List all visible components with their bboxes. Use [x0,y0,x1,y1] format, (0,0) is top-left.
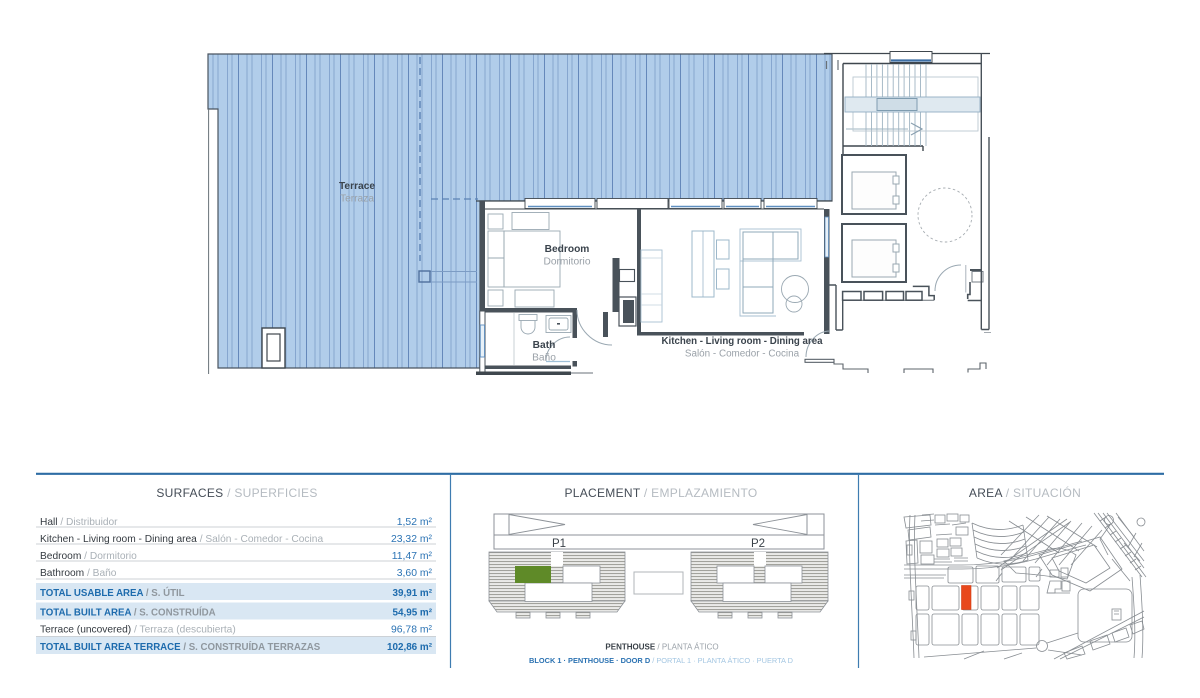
svg-text:Terraza: Terraza [340,194,374,205]
svg-text:BLOCK 1 · PENTHOUSE · DOOR D /: BLOCK 1 · PENTHOUSE · DOOR D / PORTAL 1 … [529,656,793,665]
svg-text:SURFACES / SUPERFICIES: SURFACES / SUPERFICIES [156,486,317,500]
svg-text:Hall / Distribuidor: Hall / Distribuidor [40,517,118,528]
svg-text:39,91 m²: 39,91 m² [392,588,432,599]
svg-text:TOTAL BUILT AREA TERRACE / S.: TOTAL BUILT AREA TERRACE / S. CONSTRUÍDA… [40,642,321,653]
svg-text:1,52 m²: 1,52 m² [397,517,433,528]
svg-text:Terrace: Terrace [339,181,375,192]
svg-text:P2: P2 [751,538,765,550]
svg-text:Kitchen - Living room - Dining: Kitchen - Living room - Dining area [662,336,824,347]
svg-text:PLACEMENT / EMPLAZAMIENTO: PLACEMENT / EMPLAZAMIENTO [564,486,757,500]
svg-text:96,78 m²: 96,78 m² [391,625,433,636]
svg-text:Bedroom: Bedroom [545,244,590,255]
svg-text:Bathroom / Baño: Bathroom / Baño [40,568,117,579]
svg-text:TOTAL BUILT AREA / S. CONSTRUÍ: TOTAL BUILT AREA / S. CONSTRUÍDA [40,608,216,619]
svg-text:Terrace (uncovered) / Terraza: Terrace (uncovered) / Terraza (descubier… [40,625,236,636]
svg-text:23,32 m²: 23,32 m² [391,534,433,545]
svg-text:Baño: Baño [532,353,556,364]
svg-text:3,60 m²: 3,60 m² [397,568,433,579]
svg-text:P1: P1 [552,538,566,550]
svg-text:102,86 m²: 102,86 m² [387,642,433,653]
svg-text:PENTHOUSE / PLANTA ÁTICO: PENTHOUSE / PLANTA ÁTICO [605,643,718,652]
svg-text:11,47 m²: 11,47 m² [392,551,433,562]
svg-text:54,95 m²: 54,95 m² [392,608,432,619]
svg-text:Bath: Bath [533,340,556,351]
svg-text:Kitchen - Living room - Dining: Kitchen - Living room - Dining area / Sa… [40,534,323,545]
svg-text:Dormitorio: Dormitorio [544,257,591,268]
svg-text:Bedroom / Dormitorio: Bedroom / Dormitorio [40,551,137,562]
svg-text:TOTAL USABLE AREA / S. ÚTIL: TOTAL USABLE AREA / S. ÚTIL [40,587,185,599]
svg-text:AREA / SITUACIÓN: AREA / SITUACIÓN [969,485,1081,500]
svg-text:Salón - Comedor - Cocina: Salón - Comedor - Cocina [685,349,800,360]
